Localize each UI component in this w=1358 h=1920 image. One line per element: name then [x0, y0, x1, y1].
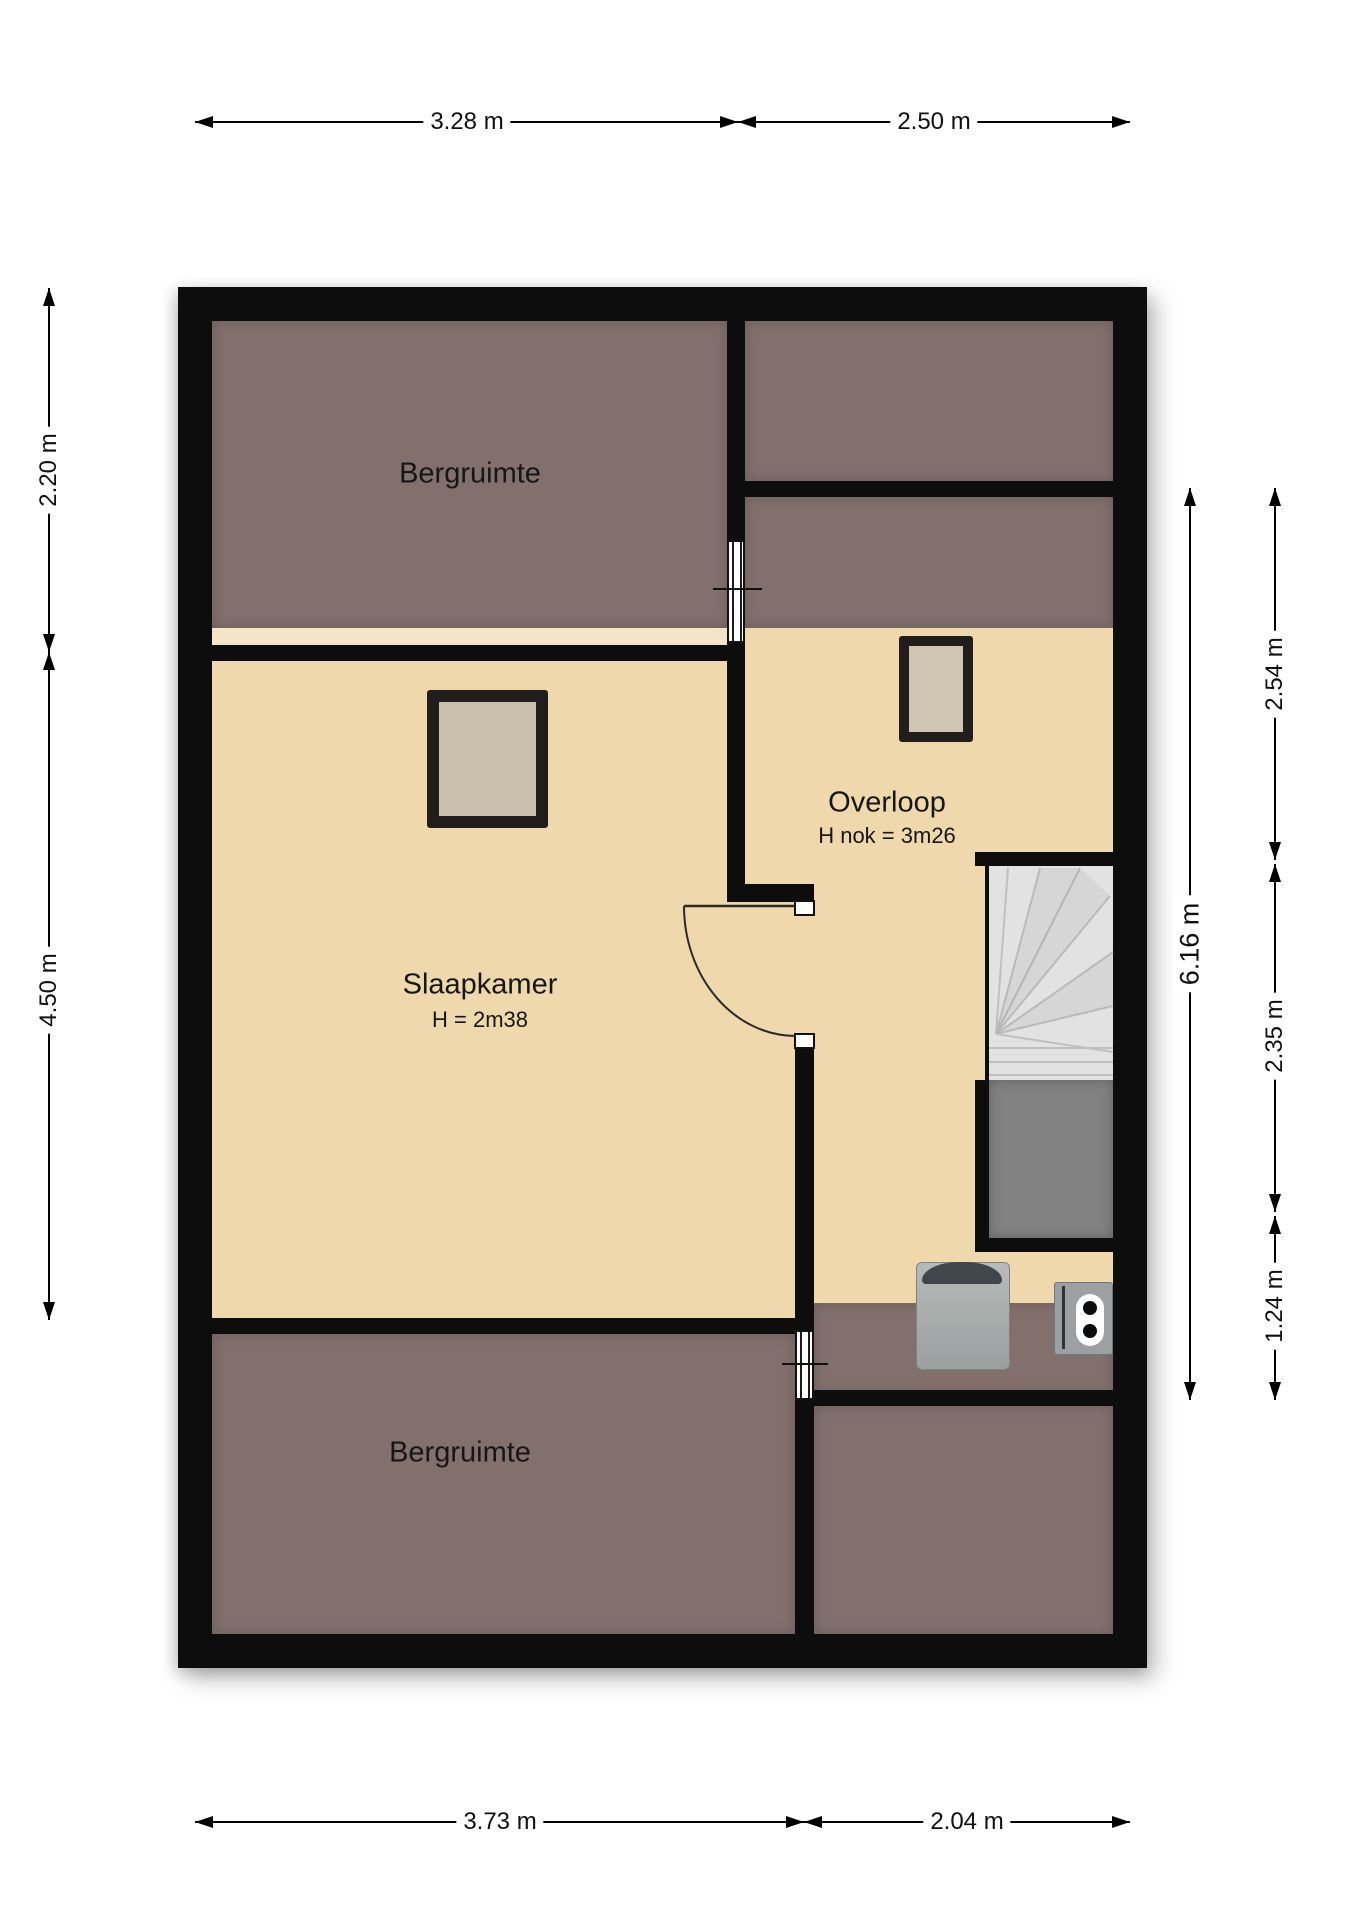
wall [745, 481, 1113, 497]
arrow-up-icon [1184, 488, 1196, 506]
window-tick [713, 588, 762, 590]
window-symbol [795, 1330, 814, 1400]
arrow-up-icon [1269, 488, 1281, 506]
wall [795, 1049, 814, 1330]
dim-label: 2.35 m [1260, 992, 1290, 1079]
room-label-bergruimte-top: Bergruimte [399, 458, 541, 491]
arrow-up-icon [43, 652, 55, 670]
arrow-right-icon [720, 116, 738, 128]
room-attic-east [745, 497, 1113, 628]
arrow-down-icon [1269, 1194, 1281, 1212]
boiler-detail [1062, 1286, 1065, 1349]
staircase-landing [989, 1080, 1113, 1238]
room-height-overloop: H nok = 3m26 [818, 823, 956, 849]
arrow-up-icon [43, 288, 55, 306]
room-label-overloop: Overloop [828, 787, 946, 820]
floorplan-canvas: Bergruimte Overloop H nok = 3m26 Slaapka… [0, 0, 1358, 1920]
dim-label: 2.50 m [890, 107, 977, 137]
arrow-up-icon [1269, 864, 1281, 882]
window-symbol [727, 540, 745, 643]
arrow-right-icon [786, 1816, 804, 1828]
arrow-down-icon [43, 634, 55, 652]
door-jamb [794, 1033, 815, 1049]
arrow-up-icon [1269, 1216, 1281, 1234]
stairwell-wall [975, 1080, 989, 1252]
staircase-symbol [989, 866, 1113, 1080]
room-bergruimte-bottom [212, 1334, 795, 1634]
room-attic-northeast [745, 321, 1113, 481]
skylight-symbol [899, 636, 973, 742]
arrow-down-icon [1184, 1382, 1196, 1400]
wall [727, 321, 745, 540]
dim-label: 3.28 m [423, 107, 510, 137]
arrow-down-icon [1269, 1382, 1281, 1400]
dim-label: 2.20 m [34, 426, 64, 513]
wall [212, 645, 727, 661]
arrow-down-icon [43, 1302, 55, 1320]
room-height-slaapkamer: H = 2m38 [432, 1007, 528, 1033]
knee-wall-strip [212, 628, 727, 645]
boiler-knob [1083, 1324, 1097, 1338]
window-tick [782, 1363, 828, 1365]
stairwell-wall [975, 852, 1113, 866]
arrow-left-icon [804, 1816, 822, 1828]
arrow-right-icon [1112, 116, 1130, 128]
dim-label: 2.54 m [1260, 630, 1290, 717]
door-jamb [794, 900, 815, 916]
boiler-knob [1083, 1301, 1097, 1315]
skylight-symbol [427, 690, 548, 828]
wall [795, 1400, 814, 1634]
wall [727, 643, 745, 884]
arrow-right-icon [1112, 1816, 1130, 1828]
room-label-slaapkamer: Slaapkamer [403, 969, 558, 1002]
arrow-left-icon [195, 116, 213, 128]
dim-label: 2.04 m [923, 1807, 1010, 1837]
stairwell-wall [975, 1238, 1113, 1252]
dim-label: 6.16 m [1174, 896, 1207, 993]
wall [212, 1318, 795, 1334]
wall [814, 1390, 1113, 1406]
arrow-left-icon [195, 1816, 213, 1828]
dim-label: 1.24 m [1260, 1262, 1290, 1349]
arrow-left-icon [738, 116, 756, 128]
room-southeast [814, 1406, 1113, 1634]
dim-label: 4.50 m [34, 946, 64, 1033]
room-label-bergruimte-bottom: Bergruimte [389, 1437, 531, 1470]
arrow-down-icon [1269, 842, 1281, 860]
dim-label: 3.73 m [456, 1807, 543, 1837]
